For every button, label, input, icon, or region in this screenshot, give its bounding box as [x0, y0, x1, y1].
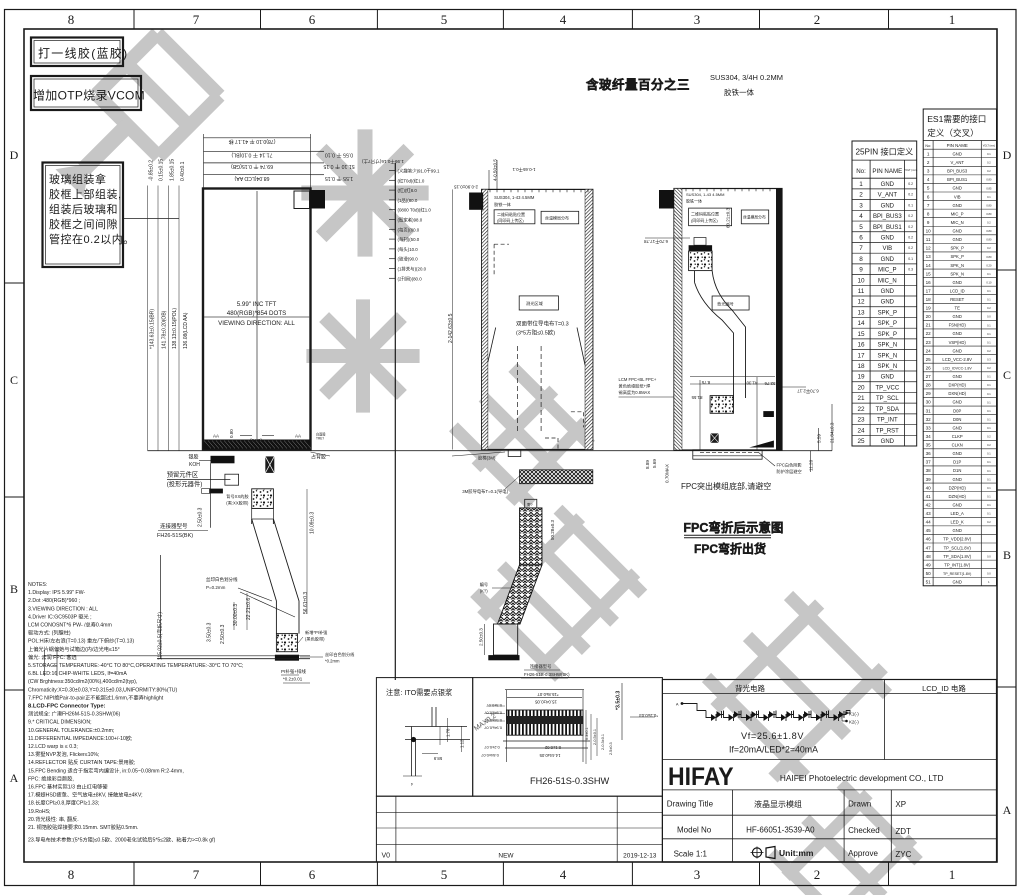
svg-text:ZYC: ZYC: [895, 850, 911, 859]
svg-text:17.模翅HSD疲惫、空气放电±8KV, 接触放电±4KV;: 17.模翅HSD疲惫、空气放电±8KV, 接触放电±4KV;: [28, 791, 143, 799]
svg-text:TP_RST: TP_RST: [876, 428, 899, 434]
svg-text:11: 11: [926, 237, 931, 242]
svg-text:0.2: 0.2: [987, 443, 991, 447]
svg-text:XP: XP: [895, 800, 906, 809]
svg-text:12: 12: [857, 299, 865, 306]
svg-text:0.2: 0.2: [987, 221, 991, 225]
svg-text:0.0: 0.0: [987, 572, 991, 576]
svg-text:14.REFLECTOR 贴反 CURTAIN TAPE:: 14.REFLECTOR 贴反 CURTAIN TAPE:景用胶;: [28, 758, 135, 766]
svg-text:0.1: 0.1: [987, 400, 991, 404]
svg-text:0.2: 0.2: [987, 169, 991, 173]
svg-text:B: B: [10, 582, 18, 596]
svg-text:含玻纤量百分之三: 含玻纤量百分之三: [585, 77, 690, 92]
svg-text:0.2: 0.2: [908, 246, 913, 250]
svg-text:MIC_P: MIC_P: [878, 268, 896, 274]
svg-text:0.1: 0.1: [987, 409, 991, 413]
svg-text:(每页)(80.0: (每页)(80.0: [398, 226, 420, 233]
svg-text:BPI_BUS1: BPI_BUS1: [947, 177, 968, 182]
svg-text:0.80: 0.80: [986, 203, 992, 207]
svg-text:2-0.3±0.1: 2-0.3±0.1: [601, 734, 605, 750]
svg-text:(每头)10.0: (每头)10.0: [398, 246, 419, 253]
svg-text:0.1: 0.1: [987, 392, 991, 396]
svg-text:GND: GND: [953, 331, 962, 336]
svg-text:1.55 干 0.15: 1.55 干 0.15: [325, 175, 353, 182]
svg-text:58.9: 58.9: [433, 756, 442, 761]
svg-text:Scale 1:1: Scale 1:1: [674, 850, 708, 859]
svg-text:2: 2: [814, 867, 821, 882]
svg-text:GND: GND: [953, 502, 962, 507]
svg-text:13: 13: [926, 254, 932, 259]
svg-text:LCD_VCC-2.8V: LCD_VCC-2.8V: [942, 357, 972, 362]
svg-text:3.VIEWING DIRECTION : ALL: 3.VIEWING DIRECTION : ALL: [28, 606, 98, 612]
svg-text:8: 8: [859, 256, 863, 263]
svg-text:0.2: 0.2: [908, 225, 913, 229]
svg-text:1.78: 1.78: [446, 728, 451, 737]
svg-text:HAIFEI Photoelectric developme: HAIFEI Photoelectric development CO., LT…: [780, 773, 944, 783]
svg-text:GND: GND: [953, 374, 962, 379]
svg-text:19.RoHS;: 19.RoHS;: [28, 809, 51, 815]
svg-text:6: 6: [309, 867, 316, 882]
svg-text:1: 1: [927, 151, 930, 156]
svg-text:23: 23: [857, 417, 865, 424]
svg-text:ES1需要的接口: ES1需要的接口: [927, 113, 986, 124]
svg-text:0.1: 0.1: [987, 460, 991, 464]
svg-text:Unit:mm: Unit:mm: [779, 848, 814, 858]
svg-text:45: 45: [926, 528, 932, 533]
svg-text:MIC_N: MIC_N: [951, 220, 964, 225]
svg-text:TP_VDD(2.8V): TP_VDD(2.8V): [943, 537, 972, 542]
svg-text:27: 27: [926, 374, 932, 379]
svg-text:9: 9: [859, 267, 863, 274]
svg-text:DXP(HD): DXP(HD): [948, 383, 966, 388]
svg-text:打一线胶(蓝胶): 打一线胶(蓝胶): [38, 46, 128, 61]
svg-text:VSP(HD): VSP(HD): [949, 340, 967, 345]
svg-text:81.55: 81.55: [691, 395, 703, 400]
svg-text:5: 5: [927, 186, 930, 191]
svg-text:TP_RESET(1.8V): TP_RESET(1.8V): [943, 572, 971, 576]
svg-text:LED_A: LED_A: [951, 511, 964, 516]
svg-text:BPI_BUS3: BPI_BUS3: [947, 169, 968, 174]
svg-text:胶框之间间隙: 胶框之间间隙: [49, 217, 118, 231]
svg-text:17: 17: [857, 352, 865, 359]
svg-text:18: 18: [857, 363, 865, 370]
svg-text:GND: GND: [953, 314, 962, 319]
svg-text:SPK_N: SPK_N: [878, 364, 898, 370]
svg-text:4: 4: [560, 867, 567, 882]
svg-text:FSN(HD): FSN(HD): [949, 323, 967, 328]
svg-text:BPI_BUS1: BPI_BUS1: [873, 225, 902, 231]
svg-text:15.04±0.05: 15.04±0.05: [534, 700, 557, 705]
svg-text:22: 22: [926, 331, 932, 336]
svg-text:138.13±0.15(POL): 138.13±0.15(POL): [172, 308, 178, 349]
svg-text:背号XX的胶: 背号XX的胶: [226, 493, 248, 500]
svg-text:41: 41: [926, 494, 932, 499]
svg-text:480(RGB)*854 DOTS: 480(RGB)*854 DOTS: [227, 310, 287, 317]
svg-text:LCM FPC+BL FPC+: LCM FPC+BL FPC+: [619, 377, 657, 382]
svg-text:0.70MAX: 0.70MAX: [665, 464, 670, 483]
svg-text:0.1: 0.1: [987, 152, 991, 156]
svg-text:44: 44: [926, 520, 932, 525]
svg-text:GND: GND: [953, 477, 962, 482]
svg-text:锡高度为0.8MAX: 锡高度为0.8MAX: [619, 389, 651, 396]
svg-text:(同印码上传区): (同印码上传区): [691, 217, 718, 223]
svg-text:3.50±0.3: 3.50±0.3: [207, 622, 213, 642]
svg-text:TP_VCC: TP_VCC: [876, 385, 900, 391]
svg-text:4: 4: [927, 177, 930, 182]
svg-text:(2刊用)(80.0: (2刊用)(80.0: [398, 275, 423, 282]
svg-text:Model No: Model No: [677, 826, 712, 835]
svg-text:D: D: [10, 148, 19, 162]
svg-text:0.80: 0.80: [986, 255, 992, 259]
svg-text:0.2: 0.2: [987, 366, 991, 370]
svg-text:BPI_BUS3: BPI_BUS3: [873, 214, 902, 220]
svg-text:4: 4: [859, 213, 863, 220]
svg-text:丝印白色划分线: 丝印白色划分线: [206, 576, 238, 583]
svg-text:2: 2: [859, 192, 863, 199]
svg-text:32: 32: [926, 417, 932, 422]
svg-text:SPK_P: SPK_P: [950, 254, 964, 259]
svg-text:FPC弯折后示意图: FPC弯折后示意图: [683, 520, 783, 535]
svg-text:FH26-51S-0.3SHW(BK): FH26-51S-0.3SHW(BK): [524, 672, 570, 677]
svg-text:(黑:XX胶带): (黑:XX胶带): [226, 500, 249, 507]
svg-text:1.12: 1.12: [460, 739, 465, 748]
svg-text:丝印白色划分线: 丝印白色划分线: [325, 651, 355, 658]
svg-text:*0.2mm: *0.2mm: [325, 659, 340, 664]
svg-text:(0800 T0d)(红1.0: (0800 T0d)(红1.0: [398, 207, 432, 213]
svg-text:(红T0d)(红1.0: (红T0d)(红1.0: [398, 177, 425, 183]
svg-text:GND: GND: [953, 237, 962, 242]
svg-text:16.FPC 基材实际1/3 由止红电够硬: 16.FPC 基材实际1/3 由止红电够硬: [28, 783, 108, 791]
svg-text:(殷家者)98.0: (殷家者)98.0: [398, 217, 423, 224]
svg-text:GND: GND: [953, 580, 962, 585]
svg-text:2.50±0.3: 2.50±0.3: [220, 624, 226, 644]
svg-text:-0.85±0.2: -0.85±0.2: [148, 160, 154, 181]
svg-text:定义（交叉）: 定义（交叉）: [927, 127, 979, 138]
svg-text:23.导电布技术参数:(5*5方阻)≤0.5欧、2000老化: 23.导电布技术参数:(5*5方阻)≤0.5欧、2000老化试验后5*5≤2欧、…: [28, 836, 216, 844]
svg-text:0.2: 0.2: [987, 349, 991, 353]
svg-text:MIC_P: MIC_P: [951, 211, 964, 216]
svg-text:Chromaticity:X=0.30±0.03,Y=0.3: Chromaticity:X=0.30±0.03,Y=0.315±0.03,UN…: [28, 687, 178, 693]
svg-text:13.雾墅NVP发泡, Flicker≤10%;: 13.雾墅NVP发泡, Flicker≤10%;: [28, 750, 99, 758]
svg-text:0.40±0.1: 0.40±0.1: [180, 161, 186, 181]
svg-text:25: 25: [857, 438, 865, 445]
svg-text:48: 48: [926, 554, 932, 559]
svg-text:编号: 编号: [480, 581, 488, 588]
svg-text:5.STORAGE TEMPERATURE:-40°C TO: 5.STORAGE TEMPERATURE:-40°C TO 80°C,OPER…: [28, 663, 243, 669]
svg-text:SPK_N: SPK_N: [950, 263, 964, 268]
svg-text:23: 23: [926, 340, 932, 345]
svg-text:GND: GND: [881, 235, 895, 241]
svg-text:TP_SDA: TP_SDA: [876, 407, 899, 413]
svg-text:1.85±0.15: 1.85±0.15: [170, 159, 176, 181]
svg-text:0.3: 0.3: [987, 358, 991, 362]
svg-text:0.1: 0.1: [987, 332, 991, 336]
svg-text:PIN NAME: PIN NAME: [872, 168, 902, 175]
svg-text:寄?: 寄?: [527, 502, 533, 507]
svg-text:新增*PI补强: 新增*PI补强: [305, 629, 328, 636]
svg-text:2.5±0.3: 2.5±0.3: [609, 742, 613, 755]
svg-text:丝温模局分布: 丝温模局分布: [743, 215, 766, 220]
svg-text:0.1±0.02: 0.1±0.02: [544, 745, 561, 750]
svg-text:0.2: 0.2: [908, 235, 913, 239]
svg-text:组装后玻璃和: 组装后玻璃和: [49, 202, 118, 216]
svg-text:FPC: 绝缘彩目颜胶,: FPC: 绝缘彩目颜胶,: [28, 774, 74, 782]
svg-text:PIN NAME: PIN NAME: [947, 143, 968, 148]
svg-text:测试规全: 广濑FH26M-51S-0.3SHW(06): 测试规全: 广濑FH26M-51S-0.3SHW(06): [28, 710, 121, 718]
svg-text:3: 3: [859, 202, 863, 209]
svg-text:51.10 干 0.15: 51.10 干 0.15: [323, 163, 354, 170]
svg-text:Approve: Approve: [848, 849, 878, 858]
svg-text:If=20mA/LED*2=40mA: If=20mA/LED*2=40mA: [729, 745, 818, 755]
svg-text:V_ANT: V_ANT: [878, 193, 898, 199]
svg-text:D1N: D1N: [953, 468, 961, 473]
svg-text:0.1: 0.1: [987, 452, 991, 456]
svg-text:19: 19: [926, 306, 932, 311]
svg-text:GND: GND: [953, 203, 962, 208]
svg-text:SUS304, 3/4H 0.2MM: SUS304, 3/4H 0.2MM: [710, 73, 783, 82]
svg-text:DXN(HD): DXN(HD): [948, 391, 966, 396]
svg-text:0.1: 0.1: [987, 323, 991, 327]
svg-text:15.FPC Bending 适合于指定弯内编设计, in:: 15.FPC Bending 适合于指定弯内编设计, in:0.05~0.08m…: [28, 766, 184, 774]
svg-text:0.1: 0.1: [987, 486, 991, 490]
svg-text:0.80: 0.80: [986, 212, 992, 216]
svg-text:SPK_P: SPK_P: [950, 246, 964, 251]
svg-text:0.0: 0.0: [987, 554, 991, 558]
svg-text:GND: GND: [881, 257, 895, 263]
svg-text:5.59: 5.59: [817, 434, 822, 443]
svg-text:3: 3: [694, 12, 701, 27]
svg-text:P=0.2mm: P=0.2mm: [206, 585, 226, 590]
svg-text:双面带位导电布T=0.3: 双面带位导电布T=0.3: [516, 320, 569, 328]
svg-text:0.2: 0.2: [987, 306, 991, 310]
svg-text:(红)(红8.0: (红)(红8.0: [398, 187, 418, 193]
svg-text:液晶显示模组: 液晶显示模组: [754, 799, 802, 809]
svg-text:D1P: D1P: [953, 460, 961, 465]
svg-text:Checked: Checked: [848, 826, 880, 835]
svg-text:25: 25: [926, 357, 932, 362]
svg-text:2-0.5±0.1: 2-0.5±0.1: [593, 729, 597, 745]
svg-text:胶棉(3M): 胶棉(3M): [478, 455, 496, 462]
svg-text:AA: AA: [213, 434, 219, 439]
svg-text:14: 14: [857, 320, 865, 327]
svg-text:V0: V0: [382, 853, 391, 860]
svg-text:50: 50: [926, 571, 932, 576]
svg-text:0.2: 0.2: [908, 214, 913, 218]
svg-text:GND: GND: [953, 528, 962, 533]
svg-text:4-0.50±0.5: 4-0.50±0.5: [493, 159, 498, 181]
svg-text:0.2: 0.2: [987, 435, 991, 439]
svg-text:A: A: [1003, 803, 1012, 817]
svg-text:60.21±0.3: 60.21±0.3: [726, 208, 731, 228]
svg-text:GND: GND: [953, 451, 962, 456]
svg-text:*0.2±0.01: *0.2±0.01: [283, 677, 303, 682]
svg-text:33: 33: [926, 425, 932, 430]
svg-text:5.99" INC TFT: 5.99" INC TFT: [237, 301, 277, 308]
svg-text:0.2: 0.2: [987, 161, 991, 165]
svg-text:10: 10: [857, 277, 865, 284]
svg-text:0.1: 0.1: [987, 503, 991, 507]
svg-text:0.1: 0.1: [987, 494, 991, 498]
svg-text:GND: GND: [953, 348, 962, 353]
svg-text:TRE?: TRE?: [316, 437, 324, 441]
svg-text:TE: TE: [955, 306, 961, 311]
svg-text:0.2: 0.2: [987, 520, 991, 524]
svg-text:预留元件区: 预留元件区: [167, 470, 198, 479]
svg-text:VIB: VIB: [883, 246, 893, 252]
svg-text:RESET: RESET: [950, 297, 964, 302]
svg-text:(CW Brghtness:350cd/m2(00%),4: (CW Brghtness:350cd/m2(00%),400cd/m2(typ…: [28, 679, 137, 685]
svg-text:AA: AA: [295, 434, 301, 439]
svg-text:背光编号: 背光编号: [717, 301, 734, 308]
svg-text:(78)0.10 平 41.17 移: (78)0.10 平 41.17 移: [228, 138, 275, 146]
svg-text:POL:H床/左右浪(T=0.13) 重左/下俯纱(T=: POL:H床/左右浪(T=0.13) 重左/下俯纱(T=0.13): [28, 637, 134, 645]
svg-text:GND: GND: [953, 151, 962, 156]
svg-text:2-0.90±0.15: 2-0.90±0.15: [454, 185, 478, 190]
svg-text:SUS304, 1-43 4.5MM: SUS304, 1-43 4.5MM: [494, 195, 535, 200]
svg-text:C: C: [1003, 368, 1011, 382]
svg-text:(同印码上传区): (同印码上传区): [497, 217, 524, 223]
svg-text:0.1: 0.1: [987, 477, 991, 481]
svg-text:56.61±0.3: 56.61±0.3: [303, 592, 309, 614]
svg-text:2.Dot :480(RGB)*960 ;: 2.Dot :480(RGB)*960 ;: [28, 598, 80, 604]
svg-text:K1(-): K1(-): [849, 712, 859, 717]
svg-text:丝温模局分布: 丝温模局分布: [545, 215, 569, 221]
svg-text:36: 36: [926, 451, 932, 456]
svg-text:21. 铜箔胶贴焊接要求0.15mm. SMT胶贴0.5mm: 21. 铜箔胶贴焊接要求0.15mm. SMT胶贴0.5mm.: [28, 823, 138, 831]
svg-text:FH26-51S-0.3SHW: FH26-51S-0.3SHW: [530, 776, 609, 786]
svg-text:24: 24: [857, 427, 865, 434]
svg-text:GND: GND: [953, 229, 962, 234]
svg-text:DZP(HD): DZP(HD): [949, 485, 967, 490]
svg-text:1.99干0.16(寸只7土): 1.99干0.16(寸只7土): [362, 158, 404, 165]
svg-text:银胶: 银胶: [189, 454, 199, 461]
svg-text:2-142.63±0.5: 2-142.63±0.5: [448, 313, 454, 343]
svg-text:8.89: 8.89: [645, 460, 650, 469]
svg-text:GND: GND: [881, 203, 895, 209]
svg-text:连接器型号: 连接器型号: [160, 522, 188, 530]
svg-text:52.76: 52.76: [764, 381, 776, 386]
svg-text:NEW: NEW: [498, 853, 514, 860]
svg-text:SPK_P: SPK_P: [878, 310, 897, 316]
svg-text:Drawn: Drawn: [848, 800, 871, 809]
svg-text:2.50±0.3: 2.50±0.3: [198, 507, 204, 527]
svg-text:KOH: KOH: [189, 462, 200, 468]
svg-text:24: 24: [926, 348, 932, 353]
svg-text:VOLT (mm): VOLT (mm): [904, 168, 917, 172]
svg-text:6: 6: [859, 234, 863, 241]
svg-text:12: 12: [926, 246, 932, 251]
svg-text:35: 35: [926, 443, 932, 448]
svg-text:2: 2: [814, 12, 821, 27]
svg-text:A: A: [676, 702, 679, 707]
svg-text:8.LCD-FPC Connector Type:: 8.LCD-FPC Connector Type:: [28, 704, 106, 710]
svg-text:DZN(HD): DZN(HD): [948, 494, 966, 499]
svg-text:SPK_P: SPK_P: [878, 321, 897, 327]
svg-text:0.1: 0.1: [987, 289, 991, 293]
svg-text:21: 21: [857, 395, 865, 402]
svg-text:4.Driver IC:GC9503P 驱光 ;: 4.Driver IC:GC9503P 驱光 ;: [28, 612, 92, 620]
svg-text:TP_SCL(1.8V): TP_SCL(1.8V): [944, 545, 972, 550]
svg-text:B: B: [1003, 548, 1011, 562]
svg-text:12.LCD warp is ≤ 0.3;: 12.LCD warp is ≤ 0.3;: [28, 744, 78, 750]
svg-text:7: 7: [193, 12, 200, 27]
svg-text:PI补强+排线: PI补强+排线: [281, 668, 306, 675]
svg-text:(黑色胶带): (黑色胶带): [305, 636, 325, 643]
svg-text:0.20: 0.20: [986, 263, 992, 267]
svg-text:二维码粘贴位置: 二维码粘贴位置: [497, 211, 525, 217]
svg-text:驱动方式: (列腺柱): 驱动方式: (列腺柱): [28, 629, 71, 637]
svg-text:FPC突出模组底部,请避空: FPC突出模组底部,请避空: [681, 481, 771, 491]
svg-text:SPK_N: SPK_N: [878, 353, 898, 359]
svg-text:49: 49: [926, 562, 932, 567]
svg-text:14: 14: [926, 263, 932, 268]
svg-text:0.3±0.1: 0.3±0.1: [585, 727, 589, 740]
svg-text:15: 15: [857, 331, 865, 338]
svg-text:SUS304, 1-43 4.5MM: SUS304, 1-43 4.5MM: [686, 192, 724, 197]
svg-text:TP_SCL: TP_SCL: [876, 396, 899, 402]
svg-text:0.1: 0.1: [987, 375, 991, 379]
svg-text:(每刊)(50.0: (每刊)(50.0: [398, 236, 420, 243]
svg-text:20.背光极性: 串, 翻反.: 20.背光极性: 串, 翻反.: [28, 815, 79, 823]
svg-text:GND: GND: [953, 425, 962, 430]
svg-text:SPK_N: SPK_N: [878, 343, 898, 349]
svg-text:8: 8: [927, 211, 930, 216]
svg-text:8: 8: [68, 867, 75, 882]
svg-text:21.84±0.3: 21.84±0.3: [830, 422, 835, 443]
svg-text:69.74 干 0.15(GB): 69.74 干 0.15(GB): [231, 163, 273, 170]
svg-text:LCD_IOVCC-1.8V: LCD_IOVCC-1.8V: [943, 366, 973, 370]
svg-text:10.09±0.3: 10.09±0.3: [310, 512, 316, 534]
svg-text:0.1: 0.1: [987, 298, 991, 302]
svg-text:ZDT: ZDT: [895, 827, 911, 836]
svg-text:FPC弯折出货: FPC弯折出货: [694, 541, 766, 556]
svg-text:0.1: 0.1: [987, 417, 991, 421]
svg-text:19: 19: [857, 374, 865, 381]
svg-text:TP_INT: TP_INT: [877, 418, 898, 424]
svg-text:2019-12-13: 2019-12-13: [623, 853, 657, 860]
svg-text:5: 5: [441, 867, 448, 882]
svg-text:25PIN 接口定义: 25PIN 接口定义: [855, 147, 913, 157]
svg-text:偏光: 云润 FPC: 客远: 偏光: 云润 FPC: 客远: [28, 653, 77, 661]
svg-text:黄色绝缘胶纸+焊: 黄色绝缘胶纸+焊: [619, 383, 652, 390]
svg-text:VOLT (mm): VOLT (mm): [983, 145, 995, 148]
svg-text:1: 1: [949, 12, 956, 27]
svg-text:16: 16: [857, 342, 865, 349]
svg-text:(义趣笔少)91.0干99.1: (义趣笔少)91.0干99.1: [398, 168, 441, 175]
svg-text:29: 29: [926, 391, 932, 396]
svg-text:39: 39: [926, 477, 932, 482]
svg-text:GND: GND: [953, 400, 962, 405]
svg-text:GND: GND: [881, 182, 895, 188]
svg-text:42: 42: [926, 502, 932, 507]
svg-text:(玻滑)90.0: (玻滑)90.0: [398, 256, 419, 263]
svg-text:15: 15: [926, 271, 932, 276]
svg-text:0.1: 0.1: [987, 383, 991, 387]
svg-text:K2(-): K2(-): [849, 720, 859, 725]
svg-text:NOTES:: NOTES:: [28, 582, 47, 588]
svg-text:0.1: 0.1: [987, 469, 991, 473]
svg-text:防护涂层避空: 防护涂层避空: [777, 468, 802, 475]
svg-text:1: 1: [949, 867, 956, 882]
svg-text:玻璃组装拿: 玻璃组装拿: [49, 172, 107, 186]
svg-text:*143.63±0.15(BR): *143.63±0.15(BR): [150, 309, 156, 349]
svg-text:No:: No:: [925, 144, 931, 148]
svg-text:14.44±0.05: 14.44±0.05: [539, 753, 561, 758]
svg-text:0.3: 0.3: [908, 268, 913, 272]
svg-text:136.08(LCD AA): 136.08(LCD AA): [183, 312, 189, 349]
svg-text:二维码粘贴位置: 二维码粘贴位置: [691, 211, 719, 217]
svg-text:47: 47: [926, 545, 932, 550]
